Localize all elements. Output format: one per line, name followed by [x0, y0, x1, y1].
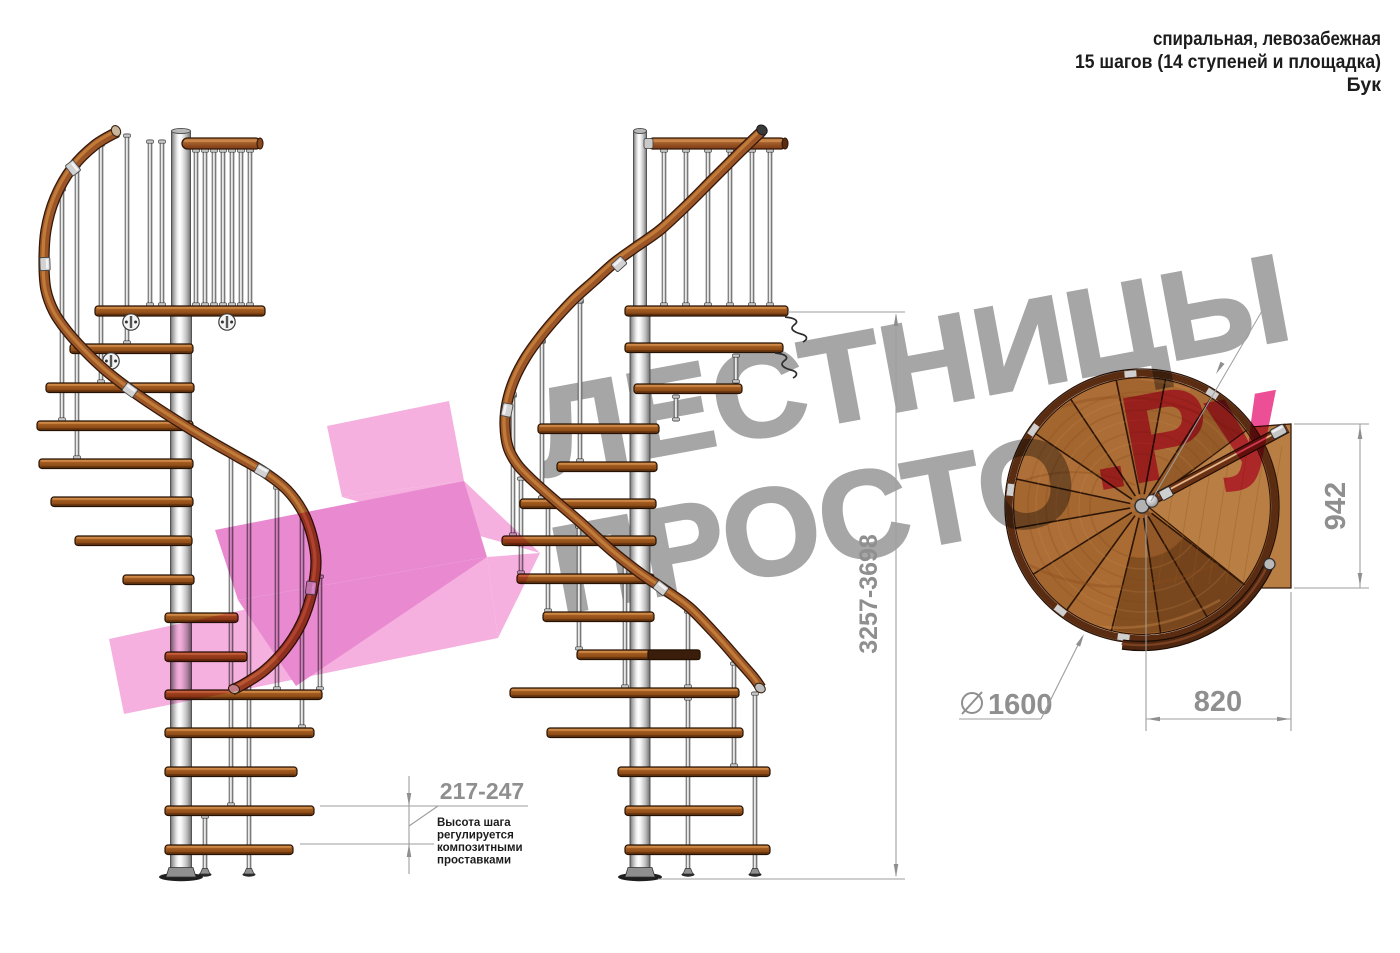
- svg-text:217-247: 217-247: [440, 778, 524, 804]
- svg-text:проставками: проставками: [437, 855, 511, 867]
- svg-text:15 шагов (14 ступеней и площад: 15 шагов (14 ступеней и площадка): [1075, 51, 1381, 73]
- svg-text:942: 942: [1320, 482, 1352, 530]
- svg-text:820: 820: [1194, 686, 1242, 718]
- svg-text:композитными: композитными: [437, 842, 523, 854]
- svg-text:Бук: Бук: [1347, 74, 1382, 96]
- svg-text:Высота шага: Высота шага: [437, 817, 511, 829]
- svg-text:регулируется: регулируется: [437, 830, 514, 842]
- svg-text:спиральная, левозабежная: спиральная, левозабежная: [1153, 28, 1381, 50]
- svg-text:3257-3698: 3257-3698: [855, 534, 883, 654]
